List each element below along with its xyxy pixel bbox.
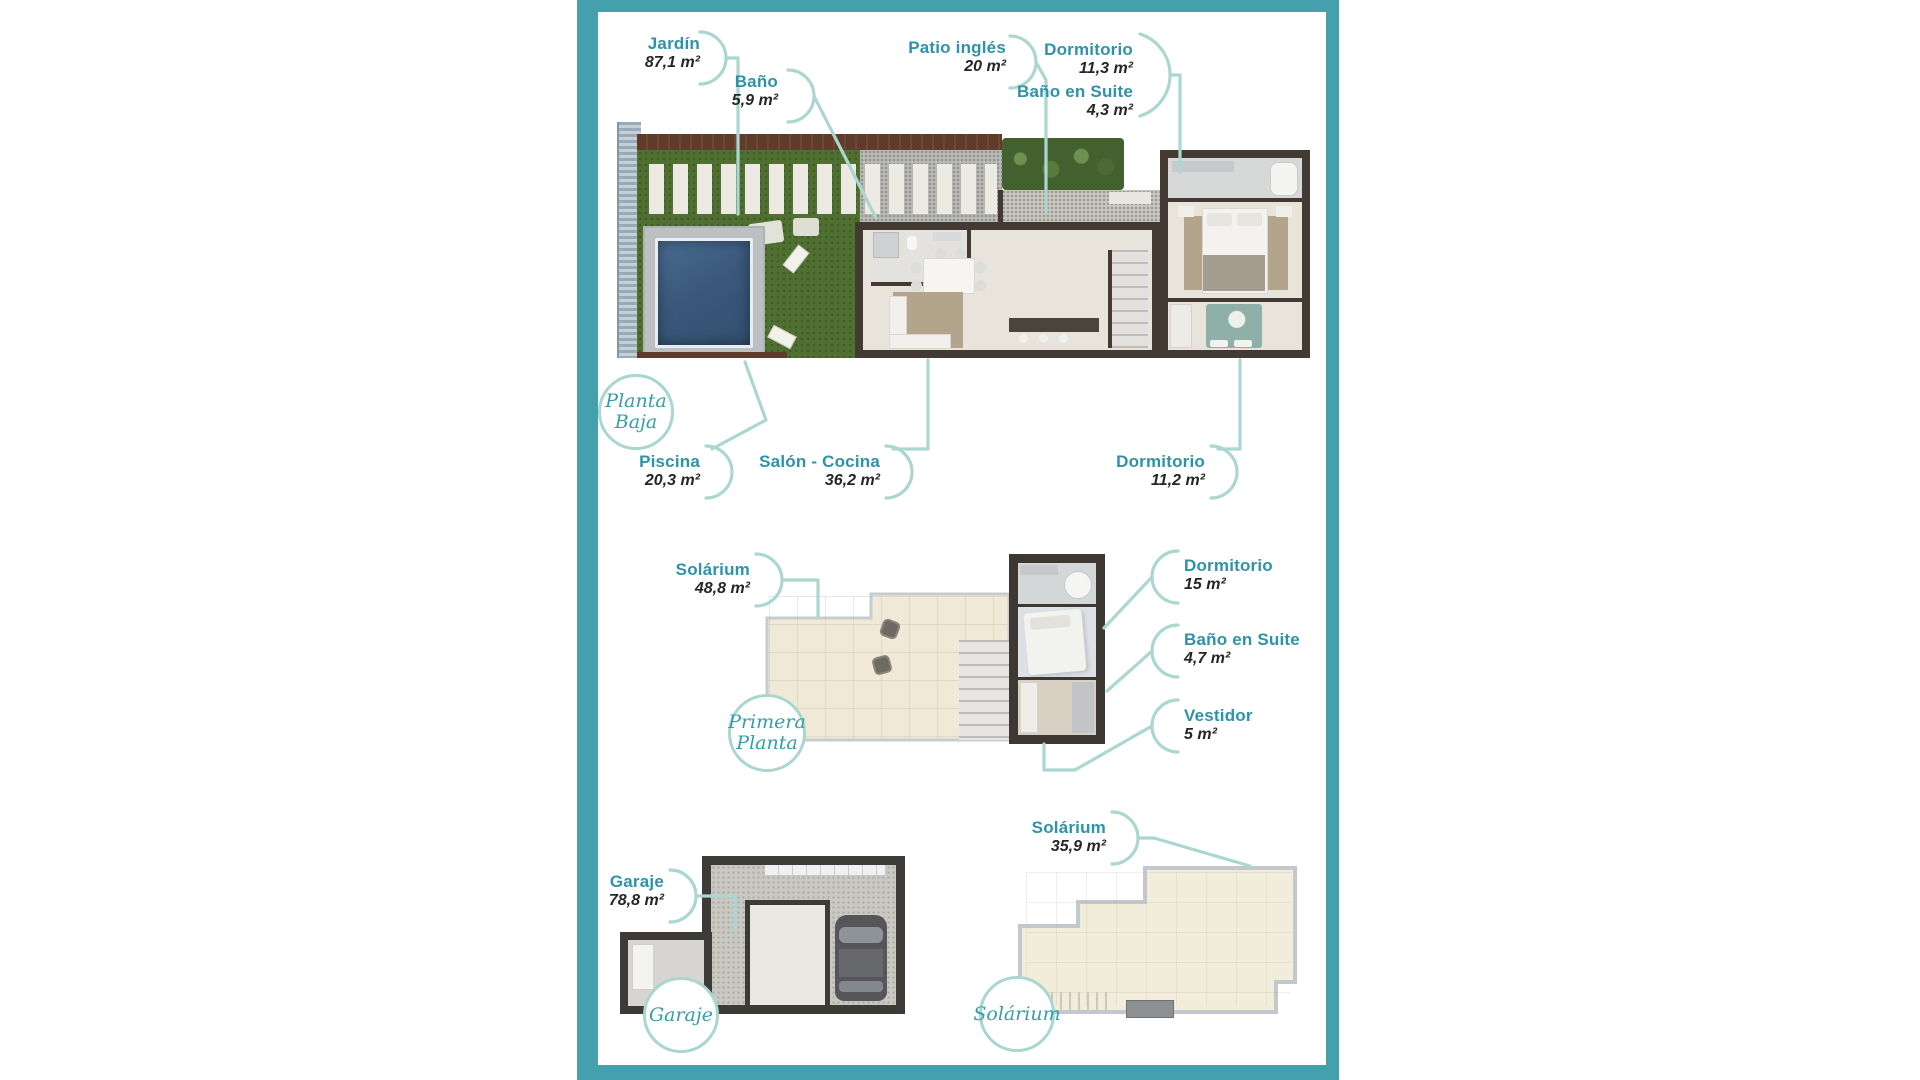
dining-chair [911, 280, 922, 291]
room-area: 48,8 m² [610, 579, 750, 598]
blanket [1203, 255, 1265, 291]
label-dormitorio-3: Dormitorio 15 m² [1184, 556, 1334, 594]
pillow [1210, 340, 1228, 347]
room-name: Dormitorio [1184, 556, 1334, 575]
living-block [855, 222, 1160, 358]
room-area: 4,3 m² [983, 101, 1133, 120]
nightstand [1276, 206, 1292, 217]
floor-badge-solarium: Solárium [979, 976, 1055, 1052]
floor-badge-title: Primera Planta [728, 712, 806, 754]
floor-badge-title: Planta Baja [605, 391, 667, 433]
floor-badge-planta-baja: Planta Baja [598, 374, 674, 450]
dining-chair [911, 262, 922, 273]
bedroom-divider-wall [1168, 298, 1302, 302]
patio-slab [1109, 192, 1151, 204]
room-name: Vestidor [1184, 706, 1334, 725]
kitchen-island [1009, 318, 1099, 332]
room-area: 11,3 m² [983, 59, 1133, 78]
dining-table [923, 258, 975, 294]
entry-door [632, 944, 654, 990]
label-solarium-1: Solárium 48,8 m² [610, 560, 750, 598]
room-name: Jardín [560, 34, 700, 53]
bathtub [1270, 162, 1298, 196]
patio-plants [1002, 138, 1124, 190]
bedroom-block [1160, 150, 1310, 358]
garden-top-fence [637, 134, 1002, 150]
closet [1020, 682, 1038, 733]
room-area: 5 m² [1184, 725, 1334, 744]
car-roof [839, 949, 883, 977]
dining-chair [935, 248, 946, 259]
label-dormitorio-2: Dormitorio 11,2 m² [1025, 452, 1205, 490]
bathtub [1064, 571, 1092, 599]
kitchen-stool [1019, 334, 1028, 343]
room-name: Baño en Suite [983, 82, 1133, 101]
label-piscina: Piscina 20,3 m² [560, 452, 700, 490]
room-area: 78,8 m² [524, 891, 664, 910]
bed [1023, 609, 1086, 676]
storage-room [745, 900, 830, 1005]
ensuite-bath [1168, 158, 1302, 202]
room-area: 87,1 m² [560, 53, 700, 72]
room-area: 35,9 m² [966, 837, 1106, 856]
floor-badge-title: Solárium [973, 1004, 1060, 1025]
sofa [889, 334, 951, 349]
label-solarium-2: Solárium 35,9 m² [966, 818, 1106, 856]
first-floor-plan [765, 554, 1105, 744]
floor-badge-title: Garaje [649, 1005, 713, 1026]
room-name: Garaje [524, 872, 664, 891]
ground-floor-plan [617, 114, 1310, 358]
car-windshield [839, 927, 883, 943]
room-area: 36,2 m² [700, 471, 880, 490]
staircase [959, 640, 1009, 740]
room-area: 11,2 m² [1025, 471, 1205, 490]
room-name: Piscina [560, 452, 700, 471]
roof-solarium-plan [1018, 864, 1304, 1024]
stepping-stone [793, 218, 819, 236]
room-name: Solárium [966, 818, 1106, 837]
upper-bedroom-block [1009, 554, 1105, 744]
label-bano-en-suite-1: Baño en Suite 4,3 m² [983, 82, 1133, 120]
closet [1072, 682, 1094, 733]
stepping-stones [649, 164, 997, 214]
label-dormitorio-1: Dormitorio 11,3 m² [983, 40, 1133, 78]
car-rear-window [839, 981, 883, 992]
wardrobe [1170, 304, 1192, 348]
ensuite-bath [1018, 563, 1096, 607]
label-jardin: Jardín 87,1 m² [560, 34, 700, 72]
garage-door [765, 865, 885, 875]
floor-badge-garaje: Garaje [643, 977, 719, 1053]
vanity [1172, 161, 1234, 172]
room-name: Salón - Cocina [700, 452, 880, 471]
patio-wall [998, 190, 1003, 222]
garden-bottom-edge [637, 352, 787, 358]
room-name: Dormitorio [983, 40, 1133, 59]
pillow [1234, 340, 1252, 347]
room-name: Solárium [610, 560, 750, 579]
label-vestidor: Vestidor 5 m² [1184, 706, 1334, 744]
label-bano: Baño 5,9 m² [648, 72, 778, 110]
pillow [1030, 615, 1071, 630]
kitchen-stool [1059, 334, 1068, 343]
room-name: Dormitorio [1025, 452, 1205, 471]
vanity [1020, 565, 1058, 575]
room-area: 15 m² [1184, 575, 1334, 594]
label-salon-cocina: Salón - Cocina 36,2 m² [700, 452, 880, 490]
kitchen-stool [1039, 334, 1048, 343]
shower [873, 232, 899, 258]
staircase [1108, 250, 1148, 348]
label-bano-en-suite-2: Baño en Suite 4,7 m² [1184, 630, 1354, 668]
solarium-tiles [1026, 872, 1290, 1006]
swimming-pool [655, 238, 753, 348]
dining-chair [955, 248, 966, 259]
toilet [907, 236, 917, 250]
room-name: Baño [648, 72, 778, 91]
pillow [1207, 213, 1232, 226]
pillow [1237, 213, 1262, 226]
room-name: Baño en Suite [1184, 630, 1354, 649]
room-area: 4,7 m² [1184, 649, 1354, 668]
label-garaje: Garaje 78,8 m² [524, 872, 664, 910]
dining-chair [975, 280, 986, 291]
bed [1202, 208, 1268, 294]
floor-badge-primera-planta: Primera Planta [728, 694, 806, 772]
room-area: 5,9 m² [648, 91, 778, 110]
dining-chair [975, 262, 986, 273]
nightstand [1178, 206, 1194, 217]
car [835, 915, 887, 1001]
room-area: 20,3 m² [560, 471, 700, 490]
sink-counter [933, 232, 961, 241]
roof-hatch [1126, 1000, 1174, 1018]
garage-main [702, 856, 905, 1014]
